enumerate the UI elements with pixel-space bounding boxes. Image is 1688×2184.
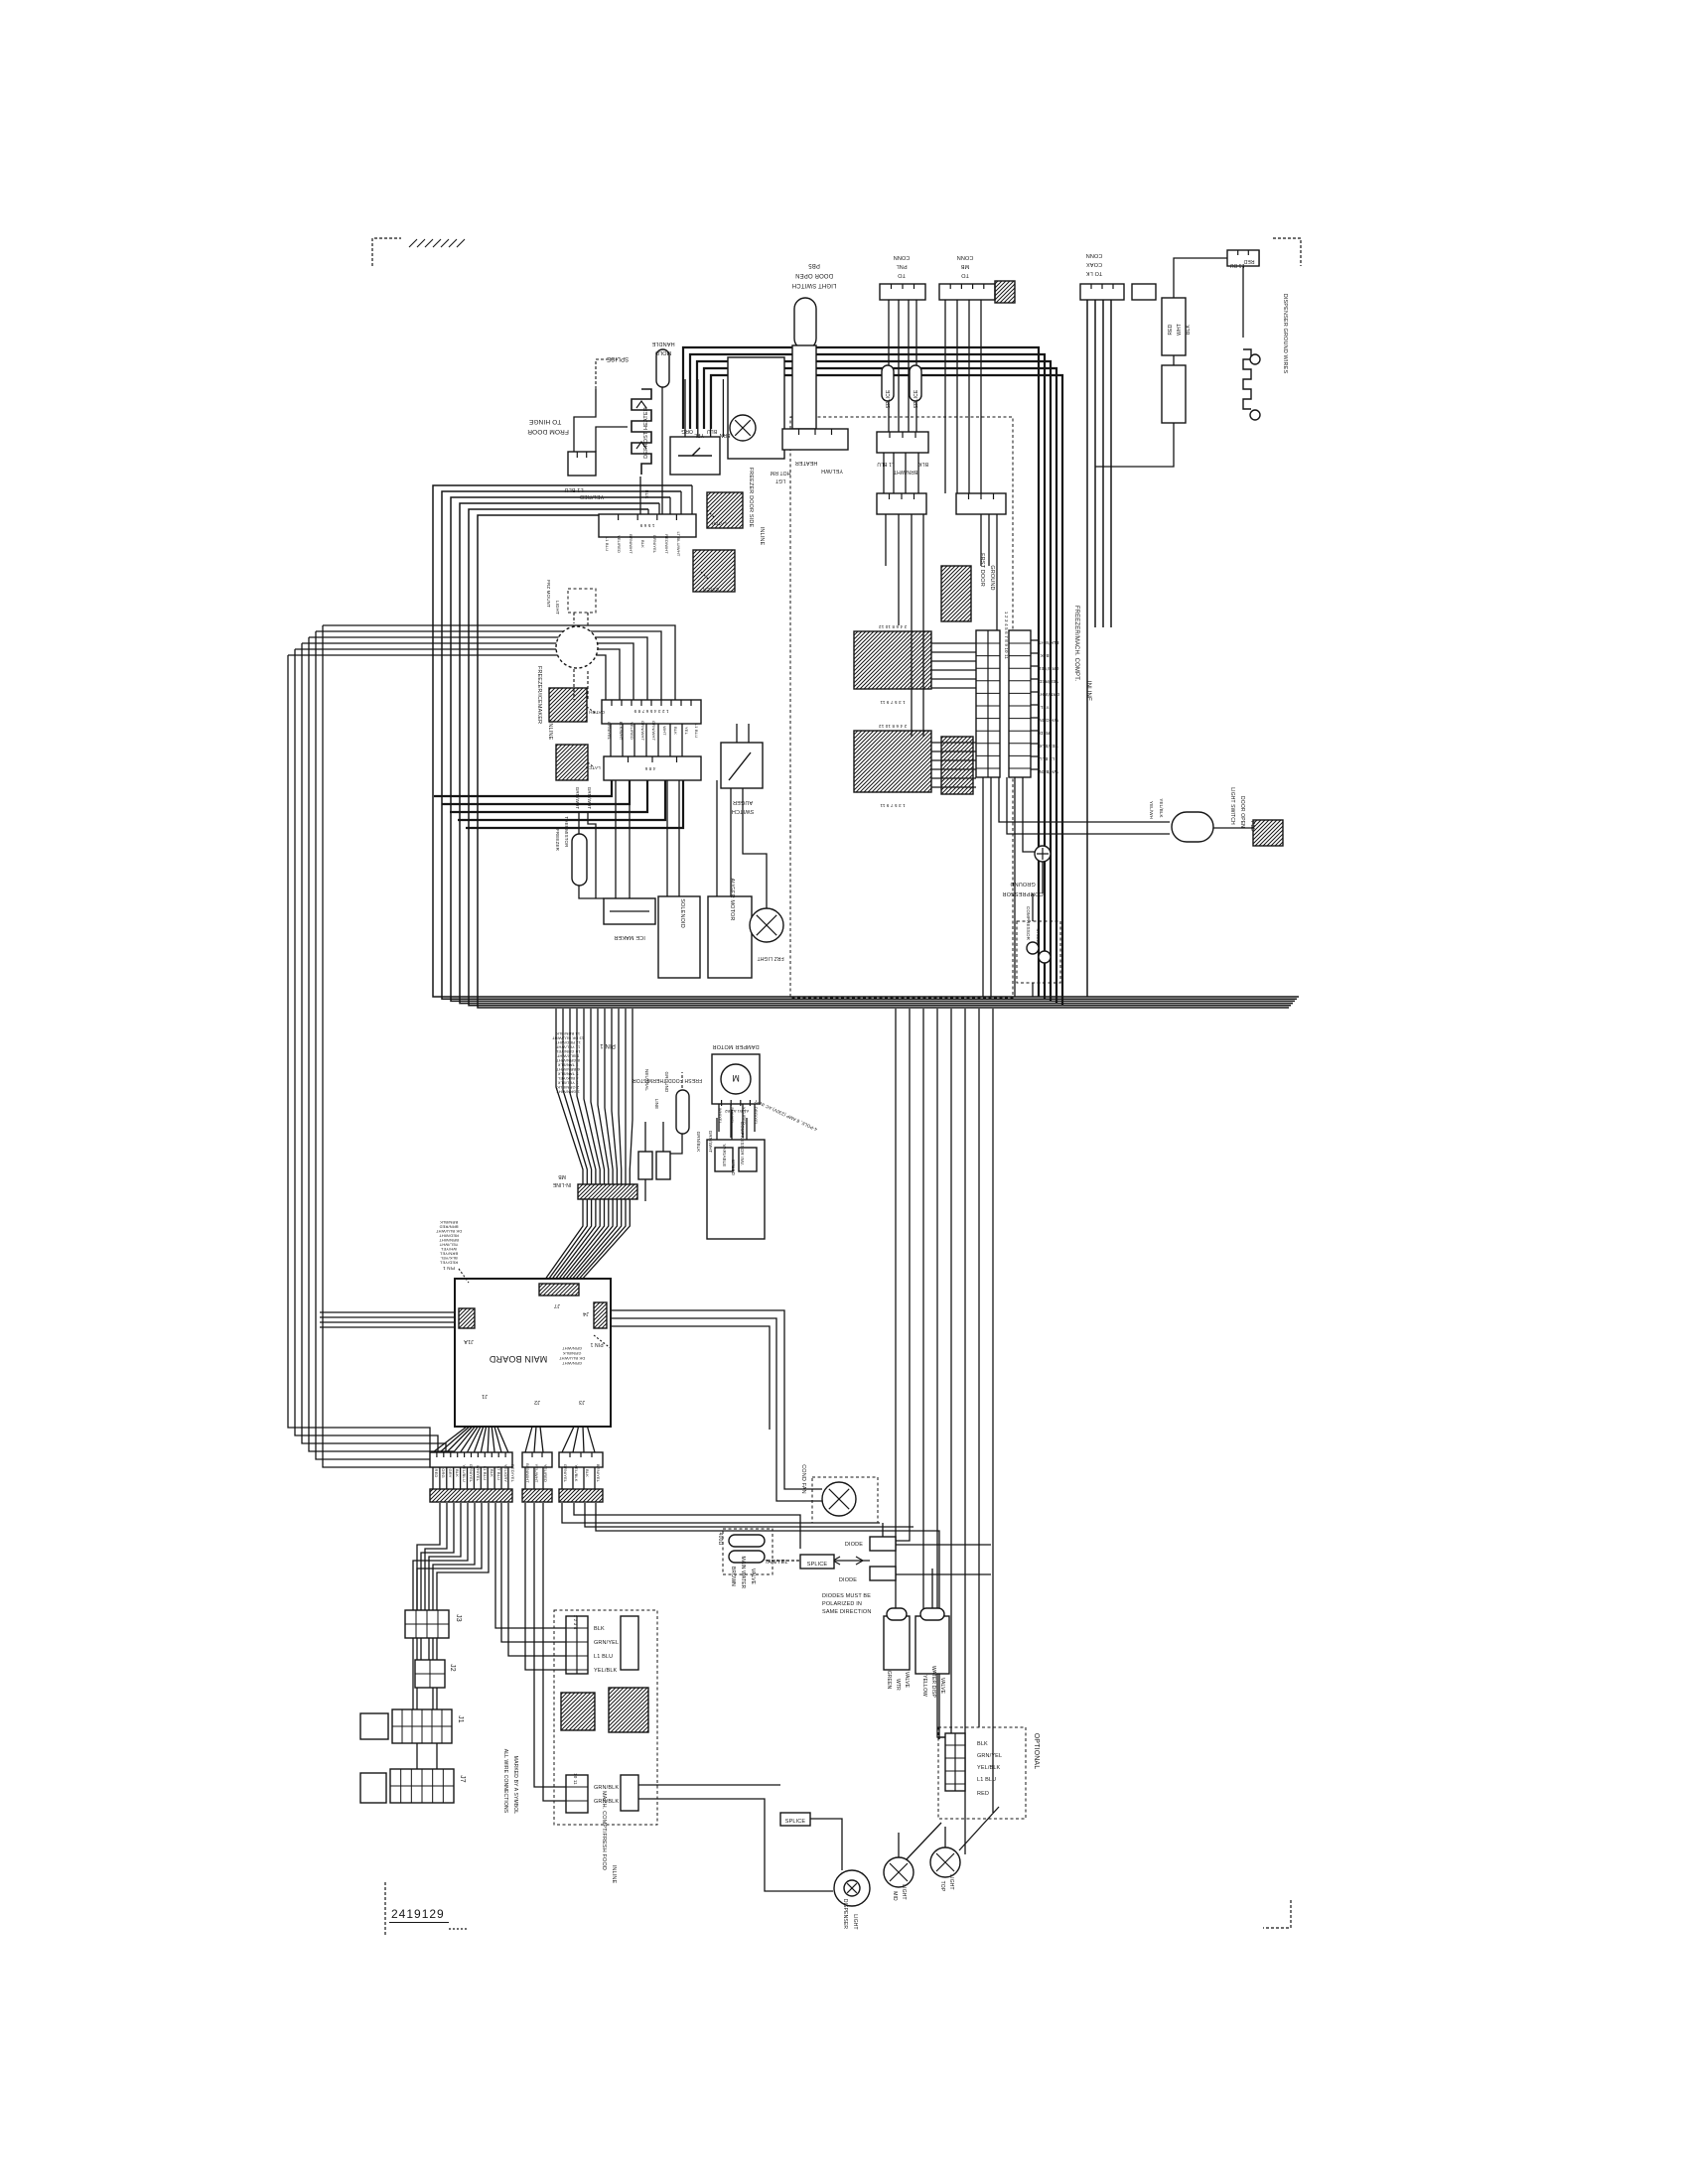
label-l1blu-c: L1 BLU	[877, 461, 895, 467]
label-frz-light: FRZ LIGHT	[757, 955, 783, 961]
label-opt-w4: L1 BLU	[977, 1777, 996, 1783]
label-wtr-v: WTR	[895, 1679, 901, 1691]
wire	[488, 1427, 489, 1452]
label-mb-conn-3: TO	[961, 272, 969, 278]
component-box	[870, 1567, 896, 1580]
label-pl-6: 6 BRN/WHT	[556, 1067, 580, 1072]
connector-hatched	[1253, 820, 1283, 846]
label-ls-ff-2: DOOR OPEN	[1239, 796, 1245, 828]
label-j4-w1: GRN/WHT	[562, 1346, 583, 1351]
wire	[534, 1427, 536, 1452]
wire	[999, 777, 1170, 822]
label-tolk-2: COAX	[1086, 261, 1102, 267]
label-mb-inline-1: MB	[558, 1173, 566, 1179]
label-doorbar-w5: GRN/YEL	[652, 535, 657, 554]
capsule	[729, 1551, 765, 1563]
label-bl-11: BRN/BLK	[440, 1220, 458, 1225]
wire	[525, 1503, 566, 1670]
label-bar1-w2: BLK/WHT	[619, 722, 624, 741]
component-box	[360, 1773, 386, 1803]
capsule	[794, 298, 816, 349]
label-opt-w5: RED	[977, 1791, 989, 1797]
wire	[441, 239, 449, 247]
label-j1-grid: J1	[457, 1715, 464, 1723]
label-pl-10: 10 GRN/YEL	[555, 1049, 580, 1054]
label-neutral: NEUTRAL	[644, 1069, 649, 1091]
label-bar1-w3: YEL/RED	[630, 722, 634, 740]
label-grid-nums-c: 2 4 6 8 10 12	[879, 724, 908, 729]
label-ls-ff-1: LIGHT SWITCH	[1229, 787, 1235, 825]
label-diodes-must-3: SAME DIRECTION	[822, 1609, 871, 1615]
label-doorbar-w1: L1 BLU	[605, 537, 610, 551]
component-box	[870, 1537, 896, 1551]
capsule	[729, 1535, 765, 1547]
connector-hatched	[556, 745, 588, 780]
label-allwire-1: ALL WIRE CONNECTIONS	[502, 1749, 508, 1814]
component-circle	[1039, 951, 1051, 963]
connector-hatched	[459, 1308, 475, 1328]
wire	[870, 1009, 910, 1541]
label-j1-r10: LT BLU	[496, 1466, 501, 1480]
label-l1blu-a: L1 BLU	[564, 486, 583, 492]
label-bar1-w5: GRN/WHT	[651, 721, 656, 742]
label-fmci-w1: BLK/WHT	[1038, 640, 1058, 645]
label-fmci-w4: YEL/RED	[1038, 679, 1058, 684]
component-box	[455, 1279, 611, 1427]
label-comp-ground-2: COMPRESSOR	[1002, 890, 1043, 896]
label-fz-icemaker-inline-2: INLINE	[547, 722, 553, 741]
wire	[457, 239, 465, 247]
wire	[1273, 238, 1301, 266]
label-diode-2: DIODE	[839, 1577, 857, 1583]
label-bar1-w8: YEL	[684, 727, 689, 736]
wire	[316, 631, 661, 700]
label-damper-w1: WH/YEL	[718, 1108, 723, 1125]
label-bl-10: BRN/RED	[439, 1225, 458, 1230]
label-pl-14: 14 BRN/BLK	[556, 1031, 580, 1036]
label-valve-b: VALVE	[750, 1569, 756, 1585]
label-pl-13: 13 DK BLU/WHT	[552, 1036, 585, 1041]
label-j2-r1: BRN/WHT	[525, 1463, 530, 1483]
connector-hatched	[594, 1302, 607, 1328]
wire	[636, 401, 646, 408]
label-tanyel: TAN/YEL	[765, 1560, 788, 1566]
label-mach-w2: GRN/YEL	[594, 1640, 619, 1646]
label-bl-1: PIN 1	[443, 1266, 455, 1271]
label-fmci-2: INLINE	[1085, 681, 1091, 701]
wire	[417, 239, 425, 247]
label-fz-icemaker-inline-1: FREEZER/ICEMAKER	[536, 666, 542, 724]
label-waterdisp-v: WATER DISP	[930, 1666, 936, 1699]
label-fmci-w10: LT BLU	[1039, 756, 1055, 761]
label-l1bu-r: L1 BU	[1229, 262, 1244, 268]
label-j1-r4: BLK	[455, 1469, 460, 1477]
label-j4-board: J4	[583, 1310, 589, 1316]
label-bar1-w7: BLK	[673, 727, 678, 735]
label-damper-motor: DAMPER MOTOR	[712, 1043, 759, 1049]
connector-hatched	[941, 737, 973, 794]
wiring-diagram-page: M FROM DOORTO HINGESPLICEDEFROST HEATERH…	[0, 0, 1688, 2184]
connector-hatched	[559, 1489, 603, 1502]
label-pl-5: 5 TAN/BLK	[557, 1072, 578, 1077]
label-auger-switch-2: SWITCH	[732, 808, 755, 814]
wire	[543, 1503, 566, 1801]
label-mach-w3: L1 BLU	[594, 1654, 613, 1660]
label-doorbar-w2: YEL/RED	[617, 535, 622, 553]
component-box	[884, 1616, 910, 1670]
label-wire-yel: YEL	[694, 432, 704, 438]
label-frst-door: FRST DOOR	[979, 553, 985, 587]
label-mach-pins-2: 10 11	[573, 1773, 578, 1785]
label-fmci-w5: GRN/WHT	[1038, 692, 1060, 697]
wire	[574, 389, 596, 452]
label-disp-ground: DISPENSER GROUND WIRES	[1282, 294, 1288, 374]
label-top-light-2: LIGHT	[948, 1874, 954, 1889]
connector-hatched	[549, 688, 587, 722]
label-hot-rm: HOT RM	[771, 470, 791, 476]
wire	[309, 637, 454, 1452]
label-mainwater-v: MAIN WATER	[740, 1557, 746, 1589]
label-doorbar-w3: BRN/WHT	[629, 534, 633, 554]
wire	[588, 1427, 596, 1452]
component-box	[792, 345, 816, 429]
label-j1-r2: ORG	[441, 1468, 446, 1478]
label-comp-shield-2: SHIELD	[1036, 928, 1041, 946]
label-bl-8: RED/WHT	[439, 1234, 459, 1239]
label-handle: HANDLE	[651, 341, 674, 346]
wire	[449, 239, 457, 247]
label-mach-inline-1: MACH. COMPT/FRESH FOOD	[601, 1791, 607, 1870]
label-hot-rm-lgt: LGT	[775, 478, 785, 483]
label-j1-r11: YEL/GRY	[503, 1464, 508, 1482]
label-opt-w2: GRN/YEL	[977, 1753, 1002, 1759]
wire	[409, 239, 417, 247]
label-heater-b: HEATER	[795, 460, 818, 466]
label-fz-door-inline-1: FREEZER DOOR SIDE	[748, 468, 754, 528]
label-frz-mount-1: FRZ MOUNT	[546, 580, 551, 608]
label-splice-v2: SPLICE	[914, 389, 919, 408]
wire	[573, 1427, 579, 1452]
wire	[302, 643, 446, 1452]
label-diode-1: DIODE	[845, 1542, 863, 1548]
label-doorbar-w7: LT BLU/WHT	[676, 532, 681, 557]
label-blk-box: BLK	[1186, 325, 1192, 335]
label-yelwh-d: YEL/WH	[1149, 801, 1154, 819]
wire	[630, 1009, 633, 1184]
label-pnl-conn-3: TO	[898, 272, 906, 278]
label-optional: OPTIONAL	[1033, 1733, 1040, 1770]
component-box	[1009, 630, 1031, 777]
connector-hatched	[430, 1489, 512, 1502]
label-mold: MOLD	[655, 349, 672, 355]
label-bar1-pins: 1 2 3 4 5 6 7 8 9	[633, 709, 668, 714]
label-red-r: RED	[1243, 258, 1254, 264]
connector-hatched	[995, 281, 1015, 303]
label-mb-inline-2: IN-LINE	[552, 1181, 571, 1187]
wire	[598, 1009, 609, 1184]
wire	[497, 1427, 508, 1452]
wire	[540, 1427, 543, 1452]
label-pl-2: 2 GRN/BLK	[557, 1085, 579, 1090]
component-box	[621, 1616, 638, 1670]
label-fmci-w8: RED	[1039, 731, 1050, 736]
label-vsc-2: SPEED	[731, 1160, 736, 1176]
component-box	[568, 452, 596, 476]
label-j1-r7: WH/YEL	[476, 1465, 481, 1482]
wire	[425, 239, 433, 247]
label-fmci-w3: GRN/YEL	[1038, 666, 1058, 671]
wire	[534, 1503, 566, 1787]
wire	[612, 1009, 617, 1184]
label-bl-2: RED/YEL	[439, 1261, 458, 1266]
label-mb-conn-1: CONN	[957, 254, 974, 260]
label-fmci-w2: BLK	[1041, 653, 1050, 658]
wire	[492, 1427, 494, 1452]
label-fmci-pincol: 1 2 3 4 5 6 7 8 9 10 11	[1004, 612, 1009, 660]
label-top-light-1: TOP	[939, 1881, 945, 1892]
label-bar1-w1: GRN/YEL	[607, 722, 612, 741]
label-j3-board: J3	[579, 1399, 585, 1405]
component-box	[658, 896, 700, 978]
label-cond-fan: COND FAN	[800, 1464, 806, 1494]
label-damper-w2: BLK/YEL	[730, 1107, 735, 1125]
label-pin1-list-hdr: PIN 1	[600, 1042, 616, 1048]
wire	[494, 1427, 501, 1452]
component-circle	[556, 626, 598, 668]
capsule	[676, 1090, 689, 1134]
label-auger-motor: AUGER MOTOR	[729, 878, 735, 920]
label-to-hinge: TO HINGE	[528, 418, 561, 425]
wire	[525, 1427, 532, 1452]
label-j3-r3: BLK	[585, 1469, 590, 1477]
label-vsc-3: COMPRESSOR INV.	[740, 1122, 745, 1165]
label-pnl-conn-1: CONN	[894, 254, 911, 260]
label-j1-r3: GRY	[448, 1468, 453, 1477]
label-yellow-v: YELLOW	[921, 1675, 927, 1697]
label-mid-light-1: MID	[892, 1891, 898, 1901]
component-circle	[1250, 354, 1260, 364]
wire	[596, 359, 618, 389]
label-line: LINE	[654, 1099, 659, 1110]
label-pl-9: 9 BLK/WHT	[556, 1054, 579, 1059]
label-splice-m: SPLICE	[807, 1562, 828, 1568]
label-ice-maker: ICE MAKER	[614, 934, 645, 940]
label-mach-w1: BLK	[594, 1626, 605, 1632]
wire	[323, 625, 675, 700]
label-j4-w4: GRN/WHT	[562, 1361, 583, 1366]
label-yelred-a: YEL/RED	[580, 493, 605, 499]
label-bl-6: YEL/WHT	[439, 1243, 458, 1248]
label-fmci-w7: WH/GRN	[1039, 718, 1058, 723]
label-j2-r2: YEL/WHT	[534, 1464, 539, 1483]
label-green-v: GREEN	[886, 1671, 892, 1690]
label-bar1-w6: WHT	[662, 726, 667, 736]
wire	[619, 1009, 622, 1184]
component-box	[638, 1152, 652, 1179]
label-grnwht-v1: GRN/WHT	[575, 787, 580, 810]
wire	[596, 427, 628, 452]
label-vsc-diag: 4-POLE, 8 AMP (230V) AC INPT	[754, 1098, 818, 1132]
wire	[583, 1427, 584, 1452]
label-ground-m: GROUND	[664, 1072, 669, 1093]
label-diodes-must-2: POLARIZED IN	[822, 1601, 862, 1607]
label-fz-therm-2: THERMISTOR	[564, 816, 569, 848]
label-pl-7: 7 TAN/BLK	[557, 1063, 578, 1068]
wire	[1263, 1900, 1291, 1928]
label-grnwht-m: GRN/WHT	[708, 1131, 713, 1154]
label-light-switch-top: LIGHT SWITCH	[792, 282, 837, 288]
wire	[607, 1310, 822, 1489]
label-bl-9: DK BLU/WHT	[436, 1229, 463, 1234]
label-from-door: FROM DOOR	[527, 428, 569, 435]
label-ls-ff-3: PB5	[1249, 821, 1255, 831]
label-brown-v: BROWN	[730, 1567, 736, 1586]
connector-hatched	[693, 550, 735, 592]
component-box	[1162, 365, 1186, 423]
label-fz-therm-1: FREEZER	[555, 829, 560, 852]
label-wire-brn: BRN	[719, 432, 730, 438]
connector-hatched	[578, 1184, 637, 1199]
label-blk-c: BLK	[918, 461, 928, 467]
label-opt-w3: YEL/BLK	[977, 1765, 1001, 1771]
label-valve-y: VALVE	[939, 1678, 945, 1695]
component-circle	[1250, 410, 1260, 420]
label-j3-r4: BRN/YEL	[596, 1464, 601, 1483]
label-mid-light-2: LIGHT	[901, 1884, 907, 1899]
label-pb5-top: PB5	[808, 262, 820, 268]
label-frz-mount-2: LIGHT	[555, 601, 560, 614]
connector-hatched	[854, 631, 931, 689]
label-j1-r5: YEL/BLU	[462, 1464, 467, 1482]
label-bar2-pins: 4 8 6	[644, 766, 655, 771]
component-box	[621, 1775, 638, 1811]
label-catch-i: CATCH	[589, 710, 605, 715]
label-diodes-must-1: DIODES MUST BE	[822, 1593, 871, 1599]
label-bl-3: BLK/YEL	[440, 1256, 458, 1261]
wire	[458, 780, 665, 820]
label-j3-r1: GRN/YEL	[563, 1464, 568, 1483]
label-damper-w4: ORG/YEL	[754, 1107, 759, 1126]
component-box	[656, 1152, 670, 1179]
label-j1-board: J1	[482, 1393, 488, 1399]
component-box	[939, 284, 995, 300]
label-j4-w2: GRN/BLK	[563, 1351, 582, 1356]
wire	[316, 631, 462, 1459]
wire	[607, 1318, 822, 1501]
label-bl-5: WH/YEL	[440, 1247, 457, 1252]
label-main-board: MAIN BOARD	[489, 1354, 547, 1364]
label-grid-nums-d: 1 3 5 7 9 11	[880, 803, 906, 808]
label-catch-d: CATCH	[703, 587, 719, 592]
wire	[442, 780, 630, 804]
wire	[1174, 258, 1227, 298]
label-pl-12: 12 RED/WHT	[555, 1040, 581, 1045]
wire	[1023, 777, 1035, 852]
label-j7-board: J7	[554, 1302, 560, 1308]
wire	[433, 239, 441, 247]
label-latch-i: LATCH	[585, 765, 600, 770]
label-j2-grid: J2	[449, 1664, 456, 1672]
label-j1-r6: GRN/YEL	[469, 1464, 474, 1483]
label-comp-ground-1: GROUND	[1010, 881, 1035, 887]
component-box	[1132, 284, 1156, 300]
label-tolk-3: TO LK	[1086, 270, 1103, 276]
label-door-bar-pins: 1 5 6 9	[639, 523, 654, 528]
connector-hatched	[854, 731, 931, 792]
wire	[743, 788, 767, 908]
wiring-diagram-svg: M FROM DOORTO HINGESPLICEDEFROST HEATERH…	[0, 0, 1688, 2184]
label-defrost-heater: DEFROST HEATER	[643, 407, 649, 459]
wire	[323, 625, 470, 1467]
label-splice-v1: SPLICE	[886, 389, 892, 408]
label-fz-door-inline-2: INLINE	[759, 527, 765, 546]
label-grid-nums-b: 1 3 5 7 9 11	[880, 700, 906, 705]
label-fmci-1: FREEZER/MACH. COMPT.	[1073, 606, 1079, 682]
component-shapes: M	[360, 250, 1283, 1906]
part-number: 2419129	[389, 1907, 449, 1923]
connector-hatched	[609, 1688, 648, 1732]
label-j1-r1: RED	[434, 1469, 439, 1478]
component-box	[721, 743, 763, 788]
wire	[495, 1503, 566, 1628]
label-disp-light-2: LIGHT	[852, 1914, 858, 1929]
capsule	[920, 1608, 944, 1620]
label-door-open-top: DOOR OPEN	[795, 272, 833, 278]
label-brnwht-c: BRN/WHT	[894, 469, 917, 475]
label-disp-light-1: DISPENSER	[842, 1899, 848, 1929]
label-grnblk-m: GRN/BLK	[696, 1132, 701, 1153]
wire	[607, 1326, 770, 1430]
label-mach-inline-2: INLINE	[611, 1865, 617, 1884]
label-latch-d: LATCH	[711, 521, 726, 526]
label-doorbar-w4: BLK	[640, 540, 645, 548]
label-tolk-1: CONN	[1086, 252, 1103, 258]
label-bar1-w9: L1 BLU	[694, 724, 699, 738]
label-pnl-conn-2: PNL	[896, 263, 907, 269]
label-j1-r8: L1 BLU	[483, 1466, 488, 1480]
label-fmci-w6: YEL	[1040, 705, 1049, 710]
label-mb-conn-2: MB	[961, 263, 970, 269]
connector-hatched	[941, 566, 971, 621]
damper-motor-glyph: M	[732, 1073, 740, 1083]
label-j7-grid: J7	[459, 1775, 466, 1783]
wire	[810, 1819, 842, 1870]
label-pl-11: 11 YEL/WHT	[555, 1045, 580, 1050]
label-mach-w4: YEL/BLK	[594, 1668, 618, 1674]
capsule	[572, 834, 587, 886]
label-frst-door-ground: GROUND	[989, 565, 995, 590]
label-j2-board: J2	[534, 1399, 540, 1405]
label-pl-1: 1 GRN/WHT	[556, 1090, 580, 1095]
wire	[434, 780, 612, 796]
label-bar1-w4: GRN/WHT	[640, 721, 645, 742]
label-doorbar-w6: RED/WHT	[664, 534, 669, 554]
label-j1a: J1A	[464, 1338, 474, 1344]
capsule	[1172, 812, 1213, 842]
label-wire-org: ORG	[681, 428, 693, 434]
component-box	[360, 1713, 388, 1739]
wire	[508, 1503, 566, 1656]
connector-hatched	[539, 1284, 579, 1296]
component-box	[728, 357, 784, 459]
wire	[372, 238, 401, 266]
label-wire-blu: BLU	[707, 428, 717, 434]
label-wht-box: WHT	[1177, 324, 1183, 336]
label-j1-r12: RED/YEL	[510, 1464, 515, 1483]
label-solenoid: SOLENOID	[679, 898, 685, 928]
label-j3-grid: J3	[455, 1614, 462, 1622]
label-j4-w3: DK BLU/WHT	[559, 1356, 586, 1361]
